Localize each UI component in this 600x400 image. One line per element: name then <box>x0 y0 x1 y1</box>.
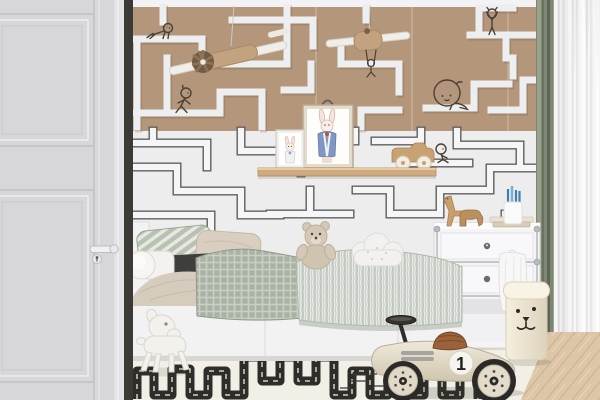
keyhole <box>96 256 99 259</box>
drawer-knob-2 <box>484 276 490 282</box>
door-handle-rosette <box>110 245 118 253</box>
bear-laundry-basket <box>503 282 551 366</box>
shelf-highlight <box>258 168 436 170</box>
bunny-frame-small <box>276 130 304 168</box>
waffle-blanket <box>196 249 303 320</box>
sheer-curtain <box>554 0 600 388</box>
bedroom-scene: 1 <box>0 0 600 400</box>
basket-rim <box>504 282 550 299</box>
puppy-eye <box>164 322 167 325</box>
door-edge <box>114 0 124 400</box>
bunny-frame-large <box>303 105 353 168</box>
door-panel <box>0 0 124 400</box>
rear-wheel <box>383 361 423 400</box>
race-number-roundel: 1 <box>449 351 473 375</box>
scene-canvas: 1 <box>0 0 600 400</box>
race-car-number: 1 <box>456 354 466 374</box>
cup <box>504 202 522 224</box>
shelf-shadow <box>258 176 436 179</box>
left-door <box>0 0 133 400</box>
puppy-leg <box>169 354 174 372</box>
drawer-knob-1-highlight <box>486 244 488 246</box>
